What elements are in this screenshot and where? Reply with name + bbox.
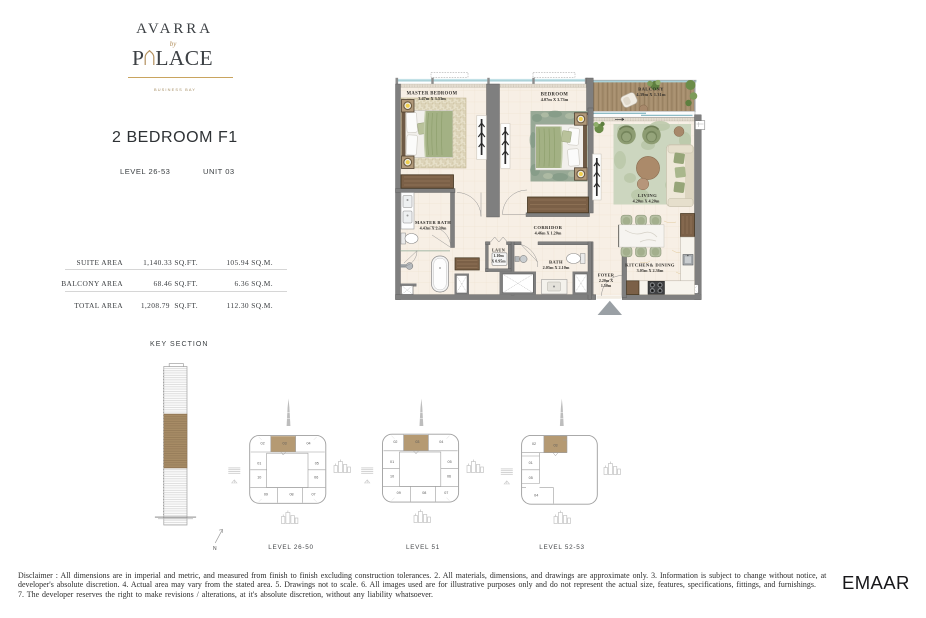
svg-text:2.05m X 2.10m: 2.05m X 2.10m — [543, 265, 570, 270]
svg-text:BALCONY: BALCONY — [638, 87, 664, 92]
svg-text:FOYER: FOYER — [598, 273, 615, 278]
svg-text:3.05m X 2.36m: 3.05m X 2.36m — [637, 268, 664, 273]
svg-text:1.10m: 1.10m — [493, 253, 504, 258]
svg-text:LAUN: LAUN — [492, 248, 505, 253]
svg-text:4.20m X 4.20m: 4.20m X 4.20m — [633, 199, 660, 204]
svg-text:4.07m X 3.73m: 4.07m X 3.73m — [541, 97, 569, 102]
svg-text:LIVING: LIVING — [638, 193, 657, 198]
svg-text:01: 01 — [529, 461, 533, 465]
svg-text:4.39m X 1.31m: 4.39m X 1.31m — [636, 92, 666, 97]
svg-text:09: 09 — [264, 492, 268, 496]
svg-text:1.50m: 1.50m — [601, 283, 612, 288]
svg-text:03: 03 — [283, 441, 287, 445]
svg-text:07: 07 — [444, 491, 448, 495]
svg-text:04: 04 — [534, 493, 538, 497]
svg-text:02: 02 — [393, 440, 397, 444]
svg-text:01: 01 — [257, 461, 261, 465]
svg-text:03: 03 — [415, 440, 419, 444]
svg-text:08: 08 — [422, 491, 426, 495]
svg-text:3.47m X 3.53m: 3.47m X 3.53m — [418, 96, 446, 101]
svg-text:04: 04 — [439, 440, 443, 444]
svg-text:10: 10 — [257, 476, 261, 480]
svg-text:4.43m X 2.30m: 4.43m X 2.30m — [420, 226, 447, 231]
svg-text:01: 01 — [390, 460, 394, 464]
svg-text:05: 05 — [529, 476, 533, 480]
svg-text:MASTER BATH: MASTER BATH — [415, 220, 451, 225]
svg-text:06: 06 — [447, 474, 451, 478]
svg-text:4.46m X 1.20m: 4.46m X 1.20m — [535, 230, 562, 235]
svg-text:05: 05 — [448, 460, 452, 464]
svg-text:BATH: BATH — [549, 260, 563, 265]
svg-text:06: 06 — [314, 476, 318, 480]
svg-text:04: 04 — [306, 441, 310, 445]
svg-text:KITCHEN& DINING: KITCHEN& DINING — [625, 262, 675, 267]
svg-text:03: 03 — [553, 444, 557, 448]
svg-text:N: N — [213, 546, 217, 552]
svg-text:07: 07 — [311, 492, 315, 496]
svg-text:CORRIDOR: CORRIDOR — [534, 225, 563, 230]
svg-text:05: 05 — [315, 461, 319, 465]
svg-text:08: 08 — [289, 492, 293, 496]
svg-text:02: 02 — [261, 441, 265, 445]
svg-text:10: 10 — [390, 474, 394, 478]
svg-text:X 0.95m: X 0.95m — [491, 259, 506, 264]
svg-text:02: 02 — [532, 442, 536, 446]
svg-text:09: 09 — [397, 491, 401, 495]
